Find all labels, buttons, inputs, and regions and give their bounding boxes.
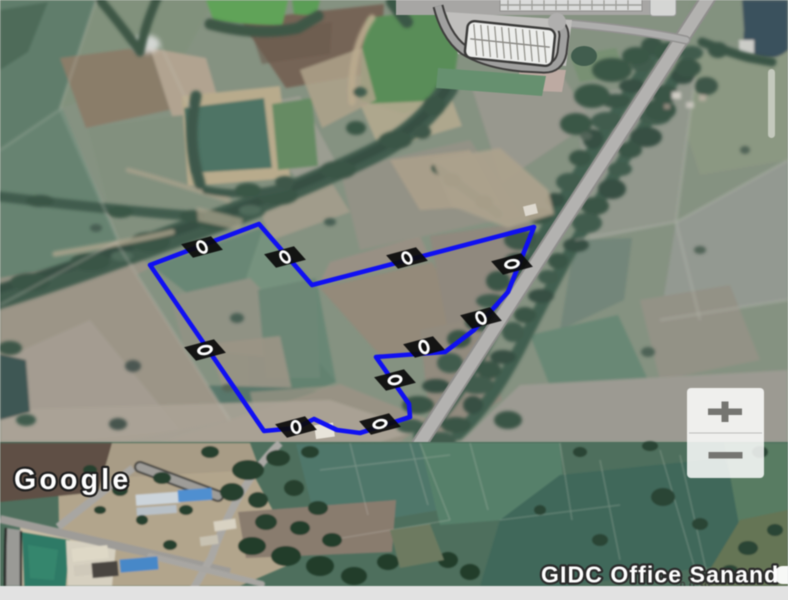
svg-text:Google: Google — [14, 464, 131, 496]
svg-text:GIDC Office Sanand: GIDC Office Sanand — [541, 562, 779, 588]
